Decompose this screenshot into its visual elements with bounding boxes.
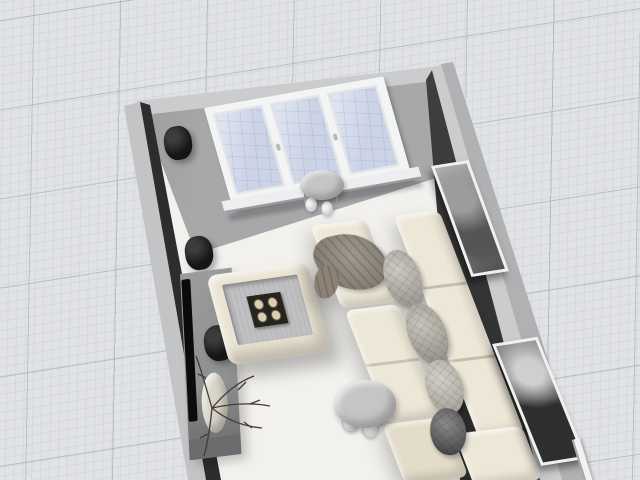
window-handle-icon (275, 143, 281, 150)
candle (256, 311, 269, 323)
candle (266, 296, 279, 308)
bistro-table-foot (321, 201, 333, 216)
bistro-table-top (300, 170, 344, 200)
side-table[interactable] (334, 380, 398, 446)
candle (252, 298, 265, 310)
candle (270, 309, 283, 321)
bistro-table[interactable] (300, 170, 346, 220)
window-handle-icon (333, 133, 339, 140)
room-3d-viewport[interactable] (0, 0, 640, 480)
side-table-top (334, 380, 396, 428)
coffee-table-tray (222, 274, 313, 345)
candle-tray (246, 292, 288, 328)
